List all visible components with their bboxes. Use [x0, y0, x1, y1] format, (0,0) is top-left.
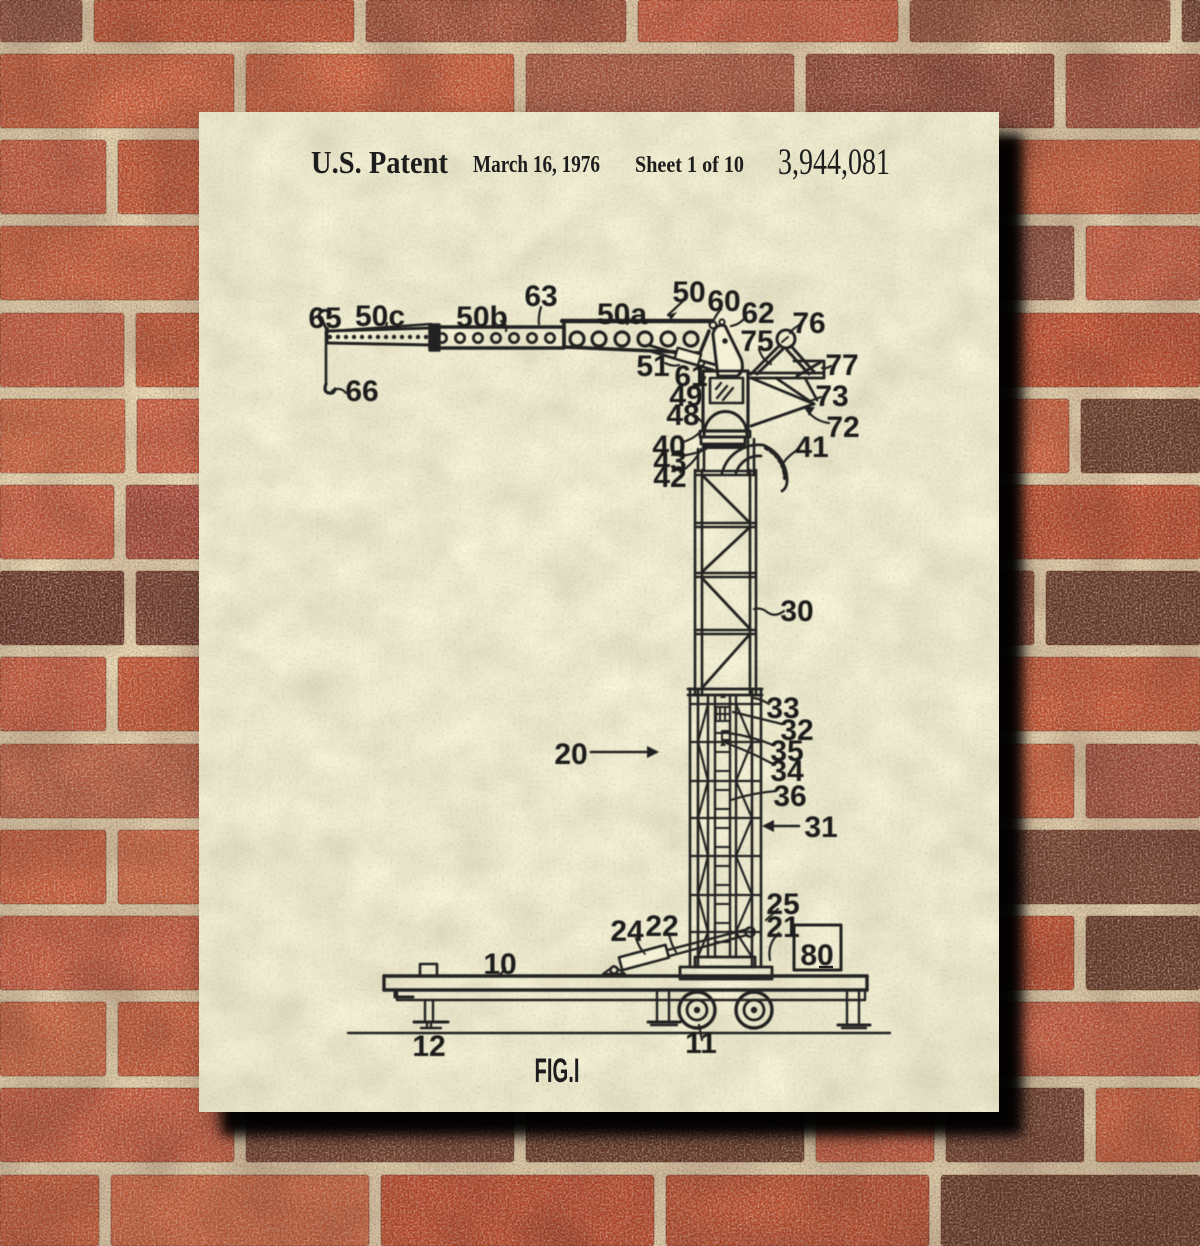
svg-text:76: 76: [792, 307, 825, 340]
svg-text:48: 48: [666, 399, 699, 432]
svg-text:50: 50: [672, 276, 705, 309]
svg-text:50b: 50b: [456, 301, 508, 334]
svg-text:63: 63: [524, 280, 557, 313]
svg-text:73: 73: [815, 380, 848, 413]
svg-text:30: 30: [780, 595, 813, 628]
svg-text:66: 66: [345, 375, 378, 408]
svg-text:FIG.I: FIG.I: [535, 1052, 580, 1090]
svg-text:77: 77: [825, 349, 858, 382]
svg-text:50a: 50a: [597, 298, 647, 331]
svg-text:50c: 50c: [355, 300, 405, 333]
svg-text:3,944,081: 3,944,081: [778, 142, 890, 183]
svg-text:60: 60: [707, 285, 740, 318]
svg-text:51: 51: [636, 350, 669, 383]
svg-text:36: 36: [773, 780, 806, 813]
svg-text:72: 72: [826, 411, 859, 444]
svg-text:75: 75: [740, 325, 773, 358]
svg-text:10: 10: [483, 948, 516, 981]
svg-text:March 16, 1976: March 16, 1976: [473, 152, 600, 178]
svg-text:22: 22: [645, 910, 678, 943]
svg-text:20: 20: [554, 738, 587, 771]
svg-text:21: 21: [766, 911, 799, 944]
svg-text:U.S. Patent: U.S. Patent: [311, 144, 448, 180]
svg-text:11: 11: [685, 1027, 717, 1060]
svg-text:Sheet 1 of 10: Sheet 1 of 10: [635, 152, 744, 177]
svg-text:65: 65: [308, 302, 341, 335]
svg-text:31: 31: [804, 811, 837, 844]
svg-text:42: 42: [653, 461, 686, 494]
svg-text:24: 24: [610, 915, 644, 948]
svg-text:41: 41: [795, 431, 828, 464]
svg-text:12: 12: [412, 1030, 445, 1063]
